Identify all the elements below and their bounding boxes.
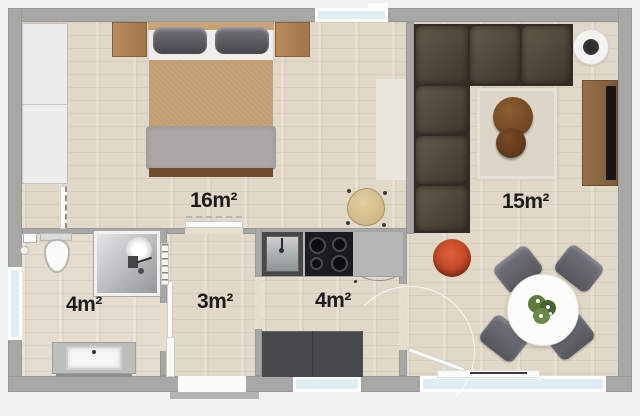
bedroom-door-leaf: [185, 221, 243, 228]
stool-leg: [383, 191, 387, 195]
bedroom-window-sill: [368, 3, 388, 8]
stool-leg: [347, 189, 351, 193]
appliance-door-arc: [358, 262, 400, 281]
towel-radiator: [161, 243, 169, 285]
bedroom-door-opening: [185, 228, 243, 234]
burner: [310, 257, 323, 270]
hallway-area-label: 3m²: [197, 290, 233, 314]
sofa-cushion: [522, 26, 571, 84]
floor-drain: [20, 246, 29, 255]
radiator: [60, 186, 67, 229]
living-area-label: 15m²: [502, 190, 549, 214]
kitchen-faucet-base: [279, 248, 284, 253]
plant-flower: [539, 314, 543, 318]
entrance-door-opening: [178, 376, 246, 392]
vanity-shadow: [56, 374, 132, 377]
counter-handle-dot: [354, 280, 357, 283]
cabinet-divider: [312, 331, 313, 377]
shower: [94, 231, 160, 296]
plant-flower: [546, 305, 550, 309]
sofa-cushion: [470, 26, 520, 84]
speaker-cone: [583, 39, 599, 55]
window-glass: [11, 270, 19, 337]
stool-leg: [346, 221, 350, 225]
entrance-door-leaf: [166, 337, 175, 377]
bed-blanket-gray: [146, 126, 276, 170]
tall-cabinet: [376, 79, 406, 180]
bed-blanket-tan: [149, 60, 273, 130]
kitchen-opening: [255, 277, 262, 329]
outer-wall-right: [618, 8, 632, 392]
bathroom-window-left: [8, 267, 22, 340]
floor-plan: 16m² 15m² 4m² 3m²: [0, 0, 640, 400]
wall-bedroom-living: [406, 22, 414, 234]
nightstand-left: [112, 22, 147, 57]
bedroom-area-label: 16m²: [190, 189, 237, 213]
tv: [606, 86, 616, 180]
shower-hose: [138, 268, 144, 274]
bathroom-area-label: 4m²: [66, 293, 102, 317]
sofa-cushion: [416, 136, 468, 184]
wardrobe-divider: [23, 104, 67, 105]
bedroom-door-swing-dashes: [186, 216, 242, 220]
burner: [309, 237, 326, 254]
bedroom-window-top: [315, 8, 388, 22]
window-glass: [296, 379, 358, 389]
bed-footboard: [149, 168, 273, 177]
vanity-faucet: [92, 350, 96, 354]
plant-flower: [536, 299, 540, 303]
sofa-cushion: [416, 26, 468, 84]
sofa-cushion: [416, 86, 468, 134]
bench-rail: [470, 372, 527, 374]
toilet-paper-holder: [23, 233, 37, 243]
burner: [331, 255, 348, 272]
wardrobe: [22, 23, 68, 184]
window-glass: [318, 11, 385, 19]
nightstand-right: [275, 22, 310, 57]
kitchen-base-cabinet: [262, 331, 363, 377]
pillow-left: [153, 27, 207, 54]
stool: [347, 188, 385, 226]
kitchen-area-label: 4m²: [315, 289, 351, 313]
entrance-threshold: [170, 392, 259, 399]
pouf-red: [433, 239, 471, 277]
plant-flower: [549, 312, 552, 315]
pillow-right: [215, 27, 269, 54]
coffee-table-small: [496, 128, 526, 158]
burner: [332, 237, 347, 252]
stool-leg: [382, 223, 386, 227]
sofa-cushion: [416, 186, 468, 231]
